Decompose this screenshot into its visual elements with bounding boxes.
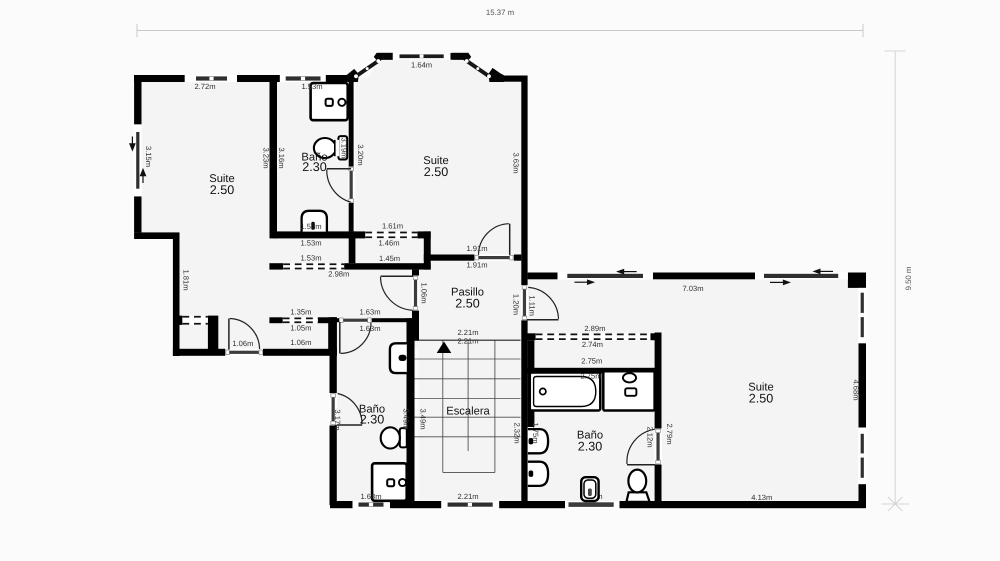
svg-text:1.64m: 1.64m <box>411 60 432 69</box>
svg-text:1.06m: 1.06m <box>232 339 253 348</box>
svg-text:1.46m: 1.46m <box>378 239 399 248</box>
svg-text:2.12m: 2.12m <box>646 426 655 447</box>
svg-text:1.45m: 1.45m <box>379 254 400 263</box>
svg-text:2.30: 2.30 <box>578 440 603 454</box>
svg-text:1.20m: 1.20m <box>512 294 521 315</box>
svg-text:2.30: 2.30 <box>302 160 327 174</box>
svg-text:1.06m: 1.06m <box>420 282 429 303</box>
svg-text:2.50: 2.50 <box>424 165 449 179</box>
svg-text:3.16m: 3.16m <box>277 147 286 168</box>
svg-text:2.30: 2.30 <box>360 413 385 427</box>
svg-text:3.15m: 3.15m <box>144 146 153 167</box>
svg-text:2.74m: 2.74m <box>582 340 603 349</box>
svg-text:2.50: 2.50 <box>210 183 235 197</box>
svg-text:2.75m: 2.75m <box>580 372 601 381</box>
svg-text:2.79m: 2.79m <box>665 423 674 444</box>
svg-text:15.37 m: 15.37 m <box>486 8 514 17</box>
svg-text:Escalera: Escalera <box>446 406 490 418</box>
svg-text:4.68m: 4.68m <box>852 379 861 400</box>
svg-text:1.53m: 1.53m <box>301 82 322 91</box>
svg-text:3.20m: 3.20m <box>356 144 365 165</box>
svg-text:3.19m: 3.19m <box>340 137 349 158</box>
svg-text:1.35m: 1.35m <box>290 307 311 316</box>
svg-text:2.89m: 2.89m <box>584 324 605 333</box>
svg-text:2.32m: 2.32m <box>513 422 522 443</box>
svg-text:3.49m: 3.49m <box>402 408 411 429</box>
svg-text:2.75m: 2.75m <box>581 356 602 365</box>
svg-text:3.49m: 3.49m <box>419 408 428 429</box>
svg-text:2.72m: 2.72m <box>194 82 215 91</box>
svg-text:1.63m: 1.63m <box>359 308 380 317</box>
svg-text:9.50 m: 9.50 m <box>904 267 913 291</box>
svg-text:3.17m: 3.17m <box>333 409 342 430</box>
svg-text:1.91m: 1.91m <box>466 260 487 269</box>
svg-text:1.63m: 1.63m <box>359 324 380 333</box>
svg-text:1.75m: 1.75m <box>531 422 540 443</box>
svg-text:1.53m: 1.53m <box>300 253 321 262</box>
svg-text:1.91m: 1.91m <box>466 244 487 253</box>
svg-text:1.61m: 1.61m <box>382 222 403 231</box>
svg-text:3.23m: 3.23m <box>262 147 271 168</box>
svg-text:1.68m: 1.68m <box>360 492 381 501</box>
svg-text:2.50: 2.50 <box>455 297 480 311</box>
svg-text:1.53m: 1.53m <box>300 222 321 231</box>
svg-text:1.81m: 1.81m <box>182 269 191 290</box>
svg-text:2.98m: 2.98m <box>328 270 349 279</box>
svg-text:2.21m: 2.21m <box>457 337 478 346</box>
svg-text:3.63m: 3.63m <box>512 152 521 173</box>
svg-text:2.50: 2.50 <box>749 392 774 406</box>
svg-text:2.21m: 2.21m <box>458 492 479 501</box>
svg-text:1.11m: 1.11m <box>528 295 537 316</box>
svg-text:2.21m: 2.21m <box>457 328 478 337</box>
svg-text:1.06m: 1.06m <box>290 338 311 347</box>
svg-text:1.05m: 1.05m <box>290 324 311 333</box>
svg-text:7.03m: 7.03m <box>682 284 703 293</box>
svg-text:4.13m: 4.13m <box>751 493 772 502</box>
svg-text:1.53m: 1.53m <box>300 238 321 247</box>
